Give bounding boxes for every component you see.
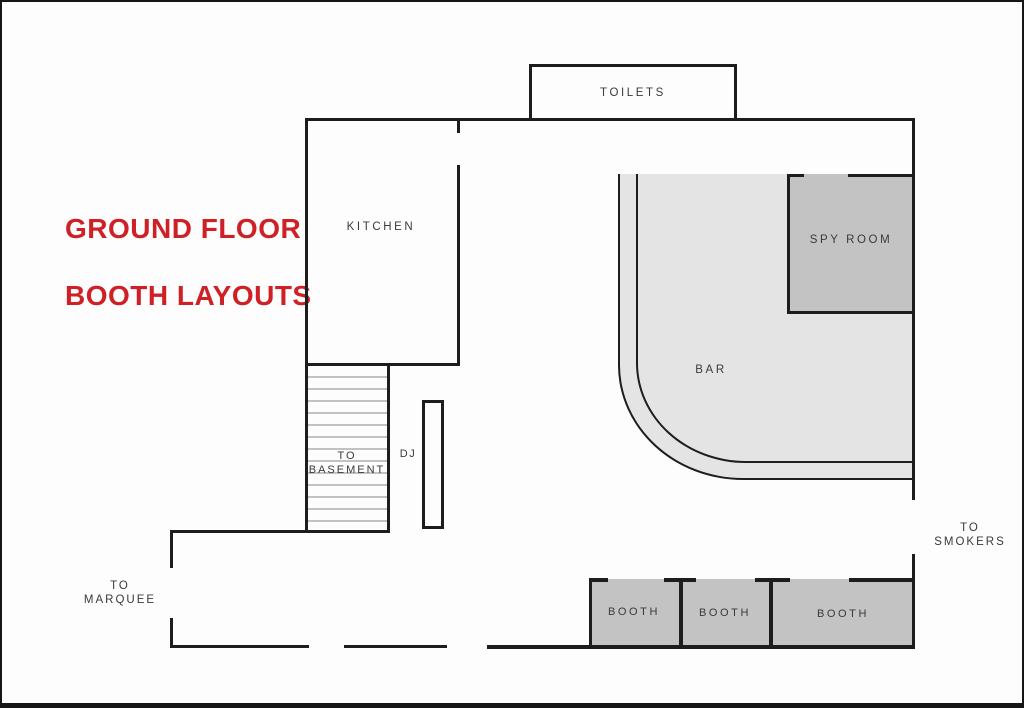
wall-booth1-top-tab-right: [664, 578, 696, 582]
wall-bottom-segment-3: [487, 645, 915, 649]
marquee-label: TO MARQUEE: [84, 579, 156, 607]
toilets-label: TOILETS: [600, 86, 666, 100]
wall-booth-divider-2: [769, 579, 773, 647]
dj-booth: [422, 400, 444, 529]
page-subtitle: BOOTH LAYOUTS: [65, 280, 312, 312]
booth2-label: BOOTH: [699, 606, 751, 620]
wall-spy-room-top-left: [787, 174, 804, 177]
wall-top: [305, 118, 915, 121]
smokers-label-line1: TO: [960, 521, 980, 535]
wall-kitchen-right: [457, 165, 460, 366]
wall-kitchen-bottom: [305, 363, 460, 366]
wall-spy-room-top-right: [848, 174, 915, 177]
basement-label: TO BASEMENT: [309, 449, 386, 477]
wall-marquee-jamb-upper: [170, 530, 173, 568]
wall-left: [305, 118, 308, 533]
wall-kitchen-door-stub: [457, 121, 460, 133]
wall-booth3-top-tab: [849, 578, 912, 582]
dj-label: DJ: [400, 447, 416, 461]
wall-right-upper: [912, 118, 915, 500]
wall-booth-divider-1: [679, 579, 683, 647]
wall-right-lower: [912, 554, 915, 649]
kitchen-label: KITCHEN: [347, 220, 416, 234]
wall-booth1-top-tab-left: [589, 578, 608, 582]
bar-label: BAR: [695, 363, 726, 377]
spy-room-label: SPY ROOM: [810, 233, 893, 247]
stairs-to-basement: [308, 366, 387, 530]
wall-stairs-right: [387, 363, 390, 533]
wall-stairs-bottom: [170, 530, 390, 533]
floor-plan: GROUND FLOOR BOOTH LAYOUTS TOILETS BAR S…: [0, 0, 1024, 708]
marquee-label-line1: TO: [110, 579, 130, 593]
wall-booth1-left: [589, 579, 592, 647]
booth1-label: BOOTH: [608, 605, 660, 619]
wall-booth2-top-tab-right: [755, 578, 790, 582]
smokers-label: TO SMOKERS: [934, 521, 1006, 549]
basement-label-line1: TO: [337, 449, 356, 463]
wall-marquee-jamb-lower: [170, 618, 173, 648]
basement-label-line2: BASEMENT: [309, 463, 386, 477]
marquee-label-line2: MARQUEE: [84, 593, 156, 607]
smokers-label-line2: SMOKERS: [934, 535, 1006, 549]
page-title: GROUND FLOOR: [65, 213, 301, 245]
wall-bottom-segment-1: [170, 645, 309, 648]
booth3-label: BOOTH: [817, 607, 869, 621]
wall-bottom-segment-2: [344, 645, 447, 648]
